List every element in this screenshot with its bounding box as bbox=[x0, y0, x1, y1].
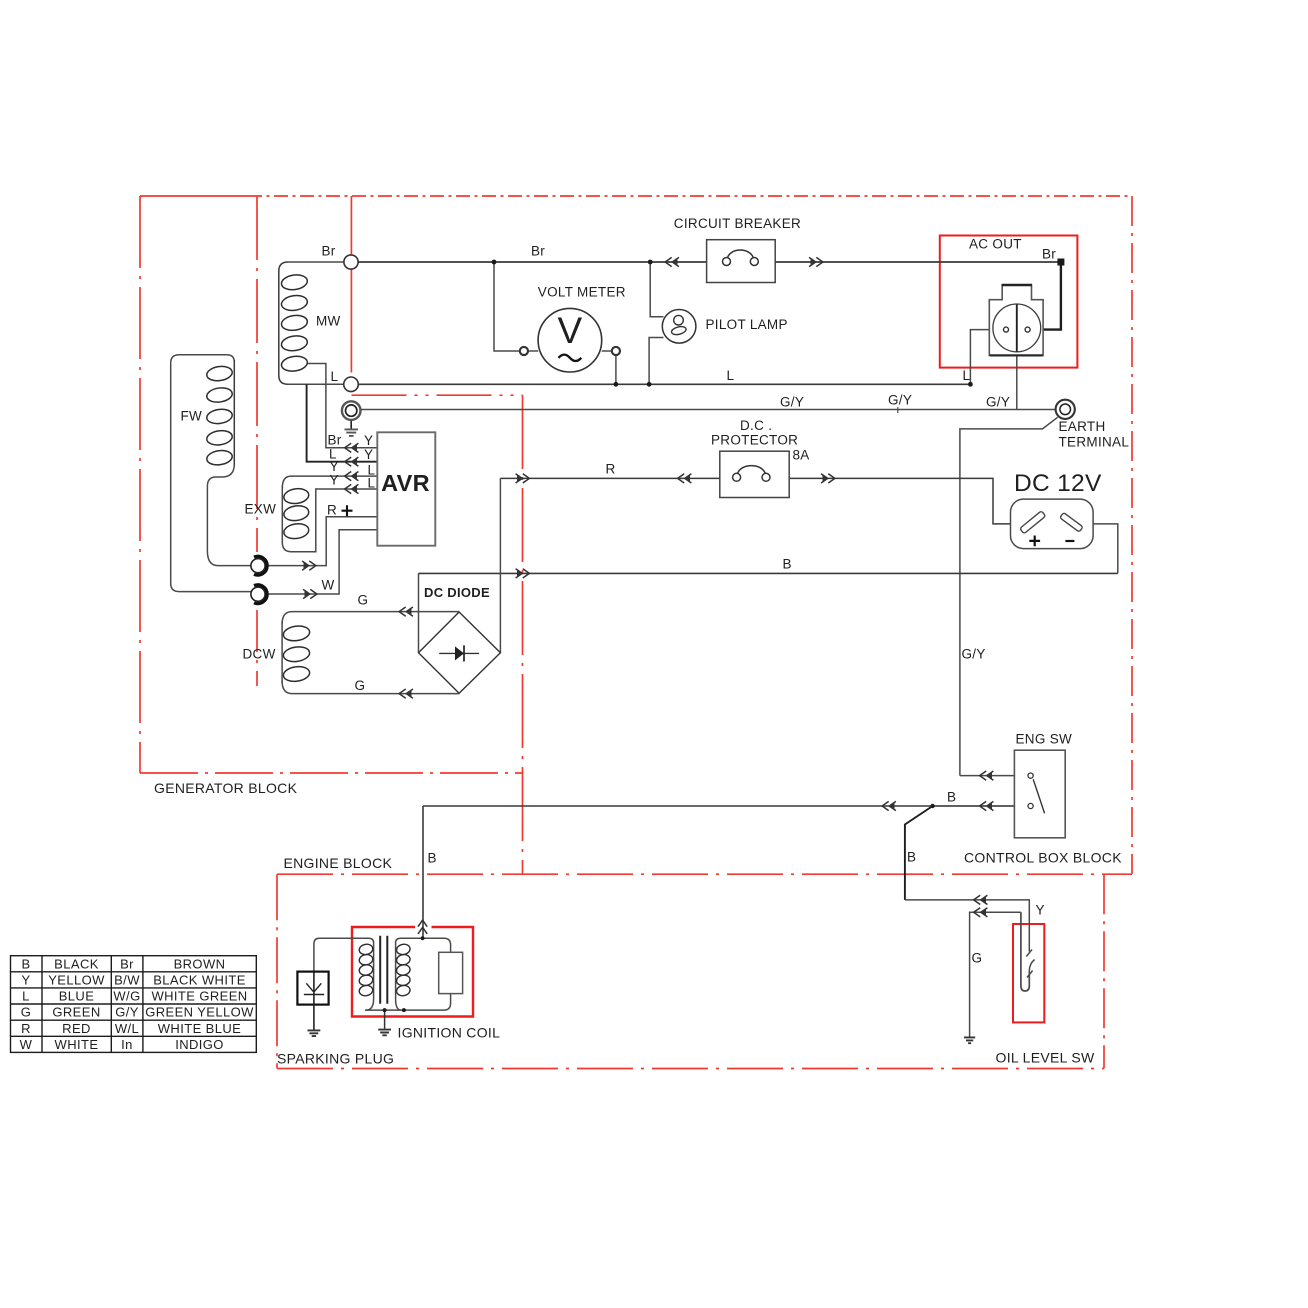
svg-text:INDIGO: INDIGO bbox=[175, 1037, 224, 1052]
svg-text:ENG SW: ENG SW bbox=[1016, 732, 1073, 747]
svg-text:AC OUT: AC OUT bbox=[969, 237, 1022, 252]
svg-text:W/G: W/G bbox=[113, 989, 140, 1004]
svg-text:R: R bbox=[606, 462, 616, 477]
svg-text:W: W bbox=[20, 1037, 33, 1052]
svg-text:MW: MW bbox=[316, 314, 341, 329]
svg-text:ENGINE BLOCK: ENGINE BLOCK bbox=[284, 855, 393, 871]
svg-text:YELLOW: YELLOW bbox=[48, 972, 105, 987]
svg-text:TERMINAL: TERMINAL bbox=[1059, 435, 1130, 450]
svg-text:GREEN YELLOW: GREEN YELLOW bbox=[145, 1005, 254, 1020]
svg-text:EXW: EXW bbox=[245, 502, 277, 517]
svg-text:Y: Y bbox=[1036, 903, 1045, 918]
svg-text:DCW: DCW bbox=[243, 647, 276, 662]
svg-text:WHITE BLUE: WHITE BLUE bbox=[158, 1021, 241, 1036]
svg-text:G: G bbox=[21, 1005, 32, 1020]
svg-text:DC DIODE: DC DIODE bbox=[424, 585, 490, 600]
svg-text:Y: Y bbox=[364, 447, 373, 462]
svg-text:AVR: AVR bbox=[381, 470, 430, 496]
svg-text:Br: Br bbox=[1042, 247, 1056, 262]
svg-text:EARTH: EARTH bbox=[1059, 419, 1106, 434]
svg-text:L: L bbox=[331, 369, 339, 384]
svg-text:W: W bbox=[322, 578, 335, 593]
svg-text:SPARKING PLUG: SPARKING PLUG bbox=[277, 1051, 394, 1067]
svg-text:DC 12V: DC 12V bbox=[1014, 470, 1102, 497]
svg-text:G/Y: G/Y bbox=[115, 1005, 139, 1020]
svg-text:BLACK: BLACK bbox=[54, 956, 99, 971]
svg-text:8A: 8A bbox=[793, 448, 810, 463]
svg-text:V: V bbox=[558, 310, 583, 351]
svg-text:OIL LEVEL SW: OIL LEVEL SW bbox=[996, 1050, 1096, 1066]
svg-text:B: B bbox=[428, 851, 437, 866]
svg-text:RED: RED bbox=[62, 1021, 91, 1036]
svg-text:B: B bbox=[21, 956, 30, 971]
svg-text:PILOT LAMP: PILOT LAMP bbox=[706, 317, 788, 332]
svg-text:G/Y: G/Y bbox=[888, 393, 912, 408]
svg-text:L: L bbox=[22, 989, 30, 1004]
svg-text:B/W: B/W bbox=[114, 972, 140, 987]
svg-text:In: In bbox=[121, 1037, 133, 1052]
svg-text:G/Y: G/Y bbox=[780, 395, 804, 410]
svg-text:G: G bbox=[358, 593, 369, 608]
svg-text:Y: Y bbox=[21, 972, 30, 987]
svg-text:Y: Y bbox=[364, 433, 373, 448]
svg-text:L: L bbox=[727, 368, 735, 383]
svg-text:R: R bbox=[327, 503, 337, 518]
svg-text:GREEN: GREEN bbox=[52, 1005, 100, 1020]
svg-text:IGNITION COIL: IGNITION COIL bbox=[398, 1025, 501, 1041]
svg-text:BROWN: BROWN bbox=[174, 956, 226, 971]
svg-text:FW: FW bbox=[181, 409, 203, 424]
svg-text:Br: Br bbox=[322, 244, 336, 259]
svg-text:G/Y: G/Y bbox=[962, 647, 986, 662]
svg-text:G: G bbox=[972, 951, 983, 966]
svg-text:CIRCUIT BREAKER: CIRCUIT BREAKER bbox=[674, 216, 801, 231]
svg-text:PROTECTOR: PROTECTOR bbox=[711, 433, 798, 448]
svg-text:B: B bbox=[947, 790, 956, 805]
svg-text:L: L bbox=[368, 476, 376, 491]
svg-text:WHITE: WHITE bbox=[55, 1037, 99, 1052]
svg-text:G: G bbox=[355, 678, 366, 693]
svg-text:WHITE GREEN: WHITE GREEN bbox=[151, 989, 247, 1004]
svg-text:G/Y: G/Y bbox=[986, 395, 1010, 410]
svg-text:BLACK WHITE: BLACK WHITE bbox=[153, 972, 246, 987]
svg-text:Br: Br bbox=[531, 244, 545, 259]
svg-text:CONTROL BOX BLOCK: CONTROL BOX BLOCK bbox=[964, 850, 1122, 866]
svg-text:R: R bbox=[21, 1021, 31, 1036]
svg-text:Br: Br bbox=[328, 433, 342, 448]
svg-text:VOLT METER: VOLT METER bbox=[538, 285, 626, 300]
svg-text:B: B bbox=[907, 850, 916, 865]
svg-text:W/L: W/L bbox=[115, 1021, 139, 1036]
svg-text:GENERATOR BLOCK: GENERATOR BLOCK bbox=[154, 780, 298, 796]
svg-text:L: L bbox=[963, 368, 971, 383]
svg-text:Y: Y bbox=[330, 473, 339, 488]
svg-text:BLUE: BLUE bbox=[59, 989, 95, 1004]
svg-text:Br: Br bbox=[120, 956, 134, 971]
svg-text:B: B bbox=[783, 557, 792, 572]
svg-text:D.C .: D.C . bbox=[740, 418, 772, 433]
